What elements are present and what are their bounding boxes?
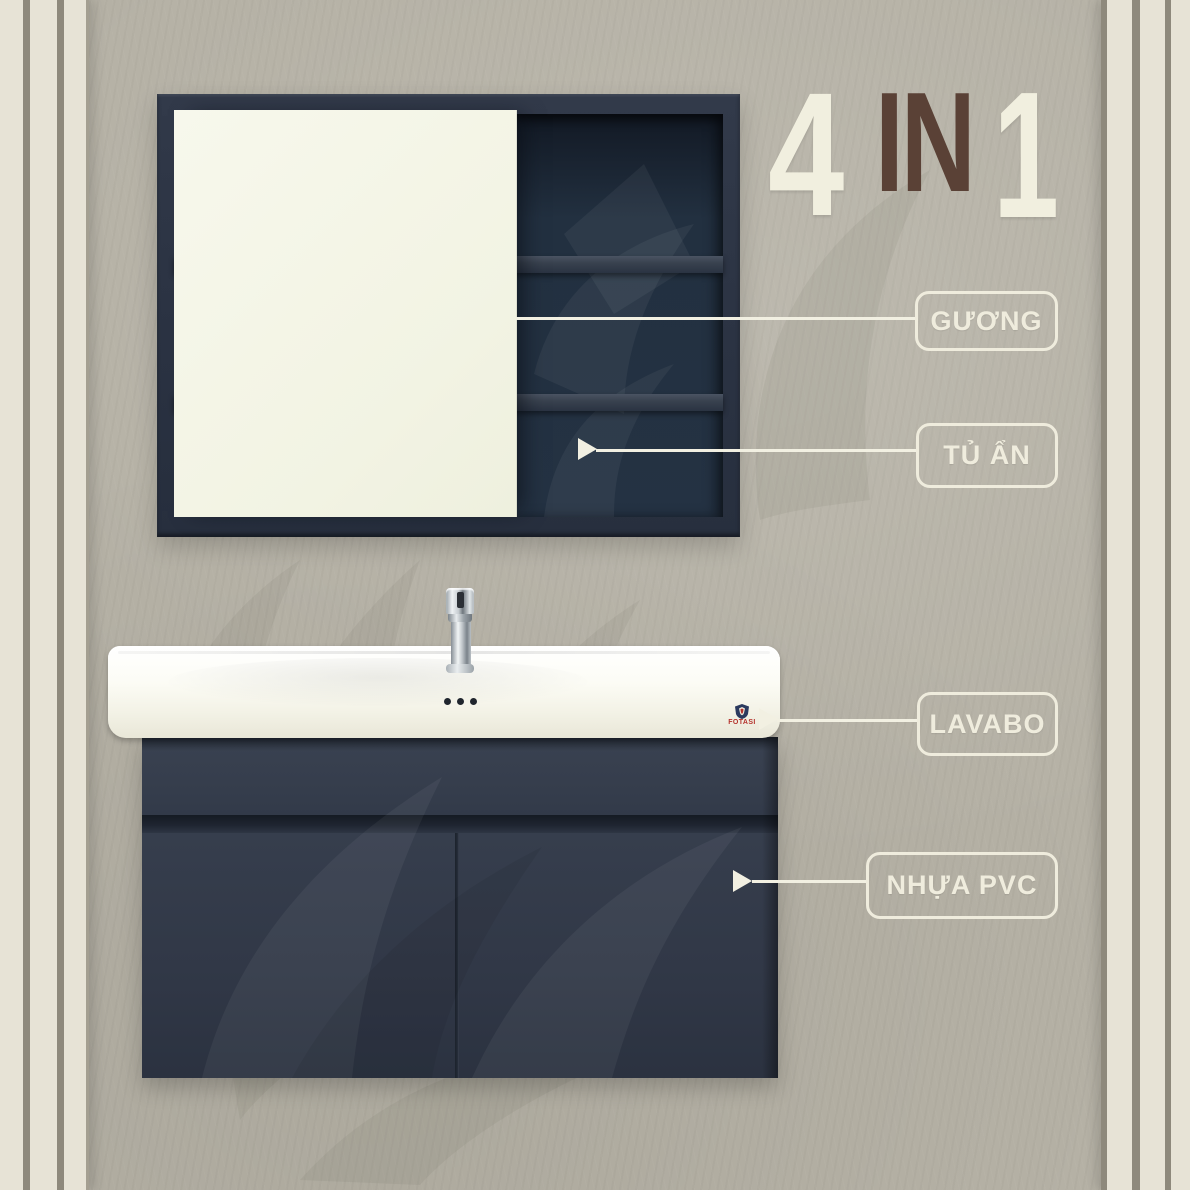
callout-label-pvc: NHỰA PVC [866, 852, 1058, 919]
faucet-base [446, 664, 474, 673]
faucet-handle-slot [457, 592, 464, 608]
sink-basin [108, 646, 780, 738]
left-border-trim [0, 0, 89, 1190]
title-connector: IN [875, 89, 951, 197]
brand-logo: FOTASI [726, 704, 758, 734]
brand-shield-icon [735, 704, 749, 719]
callout-arrow-icon [578, 438, 597, 460]
mirror-cabinet [157, 94, 740, 537]
callout-line-pvc [752, 880, 866, 883]
callout-arrow-icon [759, 708, 778, 730]
mirror-door [174, 110, 517, 517]
callout-text: NHỰA PVC [887, 870, 1038, 901]
callout-text: LAVABO [930, 709, 1046, 740]
callout-line-mirror [516, 317, 915, 320]
sink-cast-shadow [142, 737, 778, 751]
sink-bowl-shading [168, 658, 588, 706]
sink-back-ridge [118, 651, 770, 654]
sink-hole [470, 698, 477, 705]
vanity-watermark [142, 737, 778, 1078]
callout-text: TỦ ẨN [943, 440, 1031, 471]
callout-line-hidden-cabinet [596, 449, 916, 452]
vanity-cabinet [142, 737, 778, 1078]
sink-hole [457, 698, 464, 705]
faucet-body [451, 620, 471, 668]
callout-line-lavabo [777, 719, 917, 722]
brand-name: FOTASI [728, 719, 756, 727]
callout-label-lavabo: LAVABO [917, 692, 1058, 756]
title-result: 1 [993, 87, 1037, 225]
title-count: 4 [768, 87, 829, 223]
sink-hole [444, 698, 451, 705]
right-border-trim [1101, 0, 1190, 1190]
callout-arrow-icon [733, 870, 752, 892]
callout-label-hidden-cabinet: TỦ ẨN [916, 423, 1058, 488]
vanity-side-shading [762, 737, 778, 1078]
poster-canvas: FOTASI 4 IN 1 GƯƠNG TỦ ẨN LAVABO NHỰA PV… [0, 0, 1190, 1190]
callout-text: GƯƠNG [931, 306, 1043, 337]
callout-label-mirror: GƯƠNG [915, 291, 1058, 351]
